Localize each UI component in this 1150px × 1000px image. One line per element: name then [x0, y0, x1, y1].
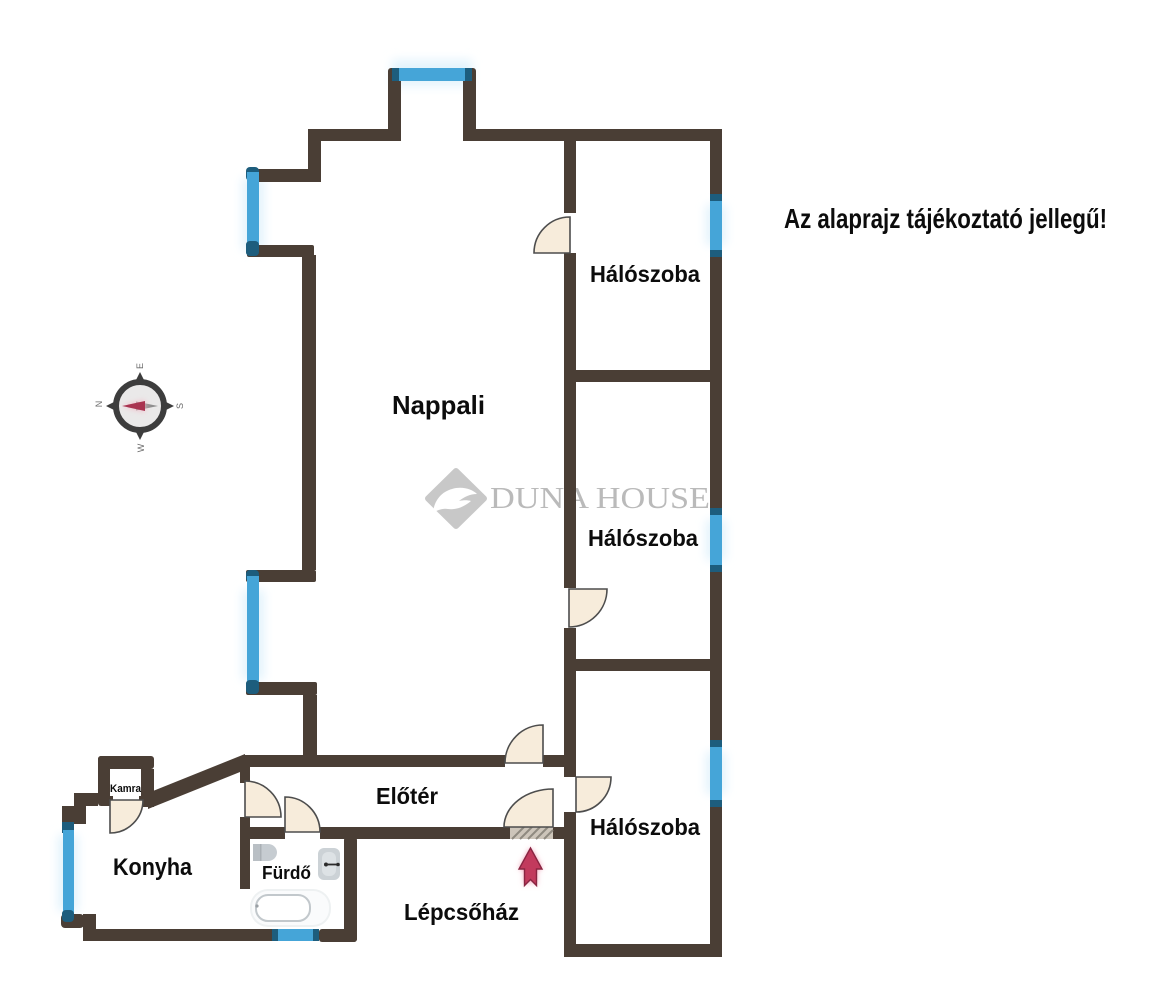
svg-text:Nappali: Nappali [392, 390, 485, 420]
svg-text:E: E [135, 363, 145, 369]
svg-text:Konyha: Konyha [113, 854, 193, 881]
svg-text:Hálószoba: Hálószoba [588, 525, 698, 551]
svg-text:Hálószoba: Hálószoba [590, 261, 700, 287]
svg-text:Lépcsőház: Lépcsőház [404, 899, 519, 925]
svg-text:Fürdő: Fürdő [262, 863, 311, 883]
svg-text:Az alaprajz tájékoztató jelleg: Az alaprajz tájékoztató jellegű! [784, 203, 1107, 234]
svg-text:S: S [175, 403, 185, 409]
svg-text:N: N [94, 401, 104, 408]
svg-text:DUNA HOUSE: DUNA HOUSE [490, 480, 710, 515]
svg-text:Előtér: Előtér [376, 783, 438, 809]
svg-text:W: W [136, 443, 146, 452]
svg-text:Kamra: Kamra [110, 783, 142, 795]
svg-text:Hálószoba: Hálószoba [590, 814, 700, 840]
